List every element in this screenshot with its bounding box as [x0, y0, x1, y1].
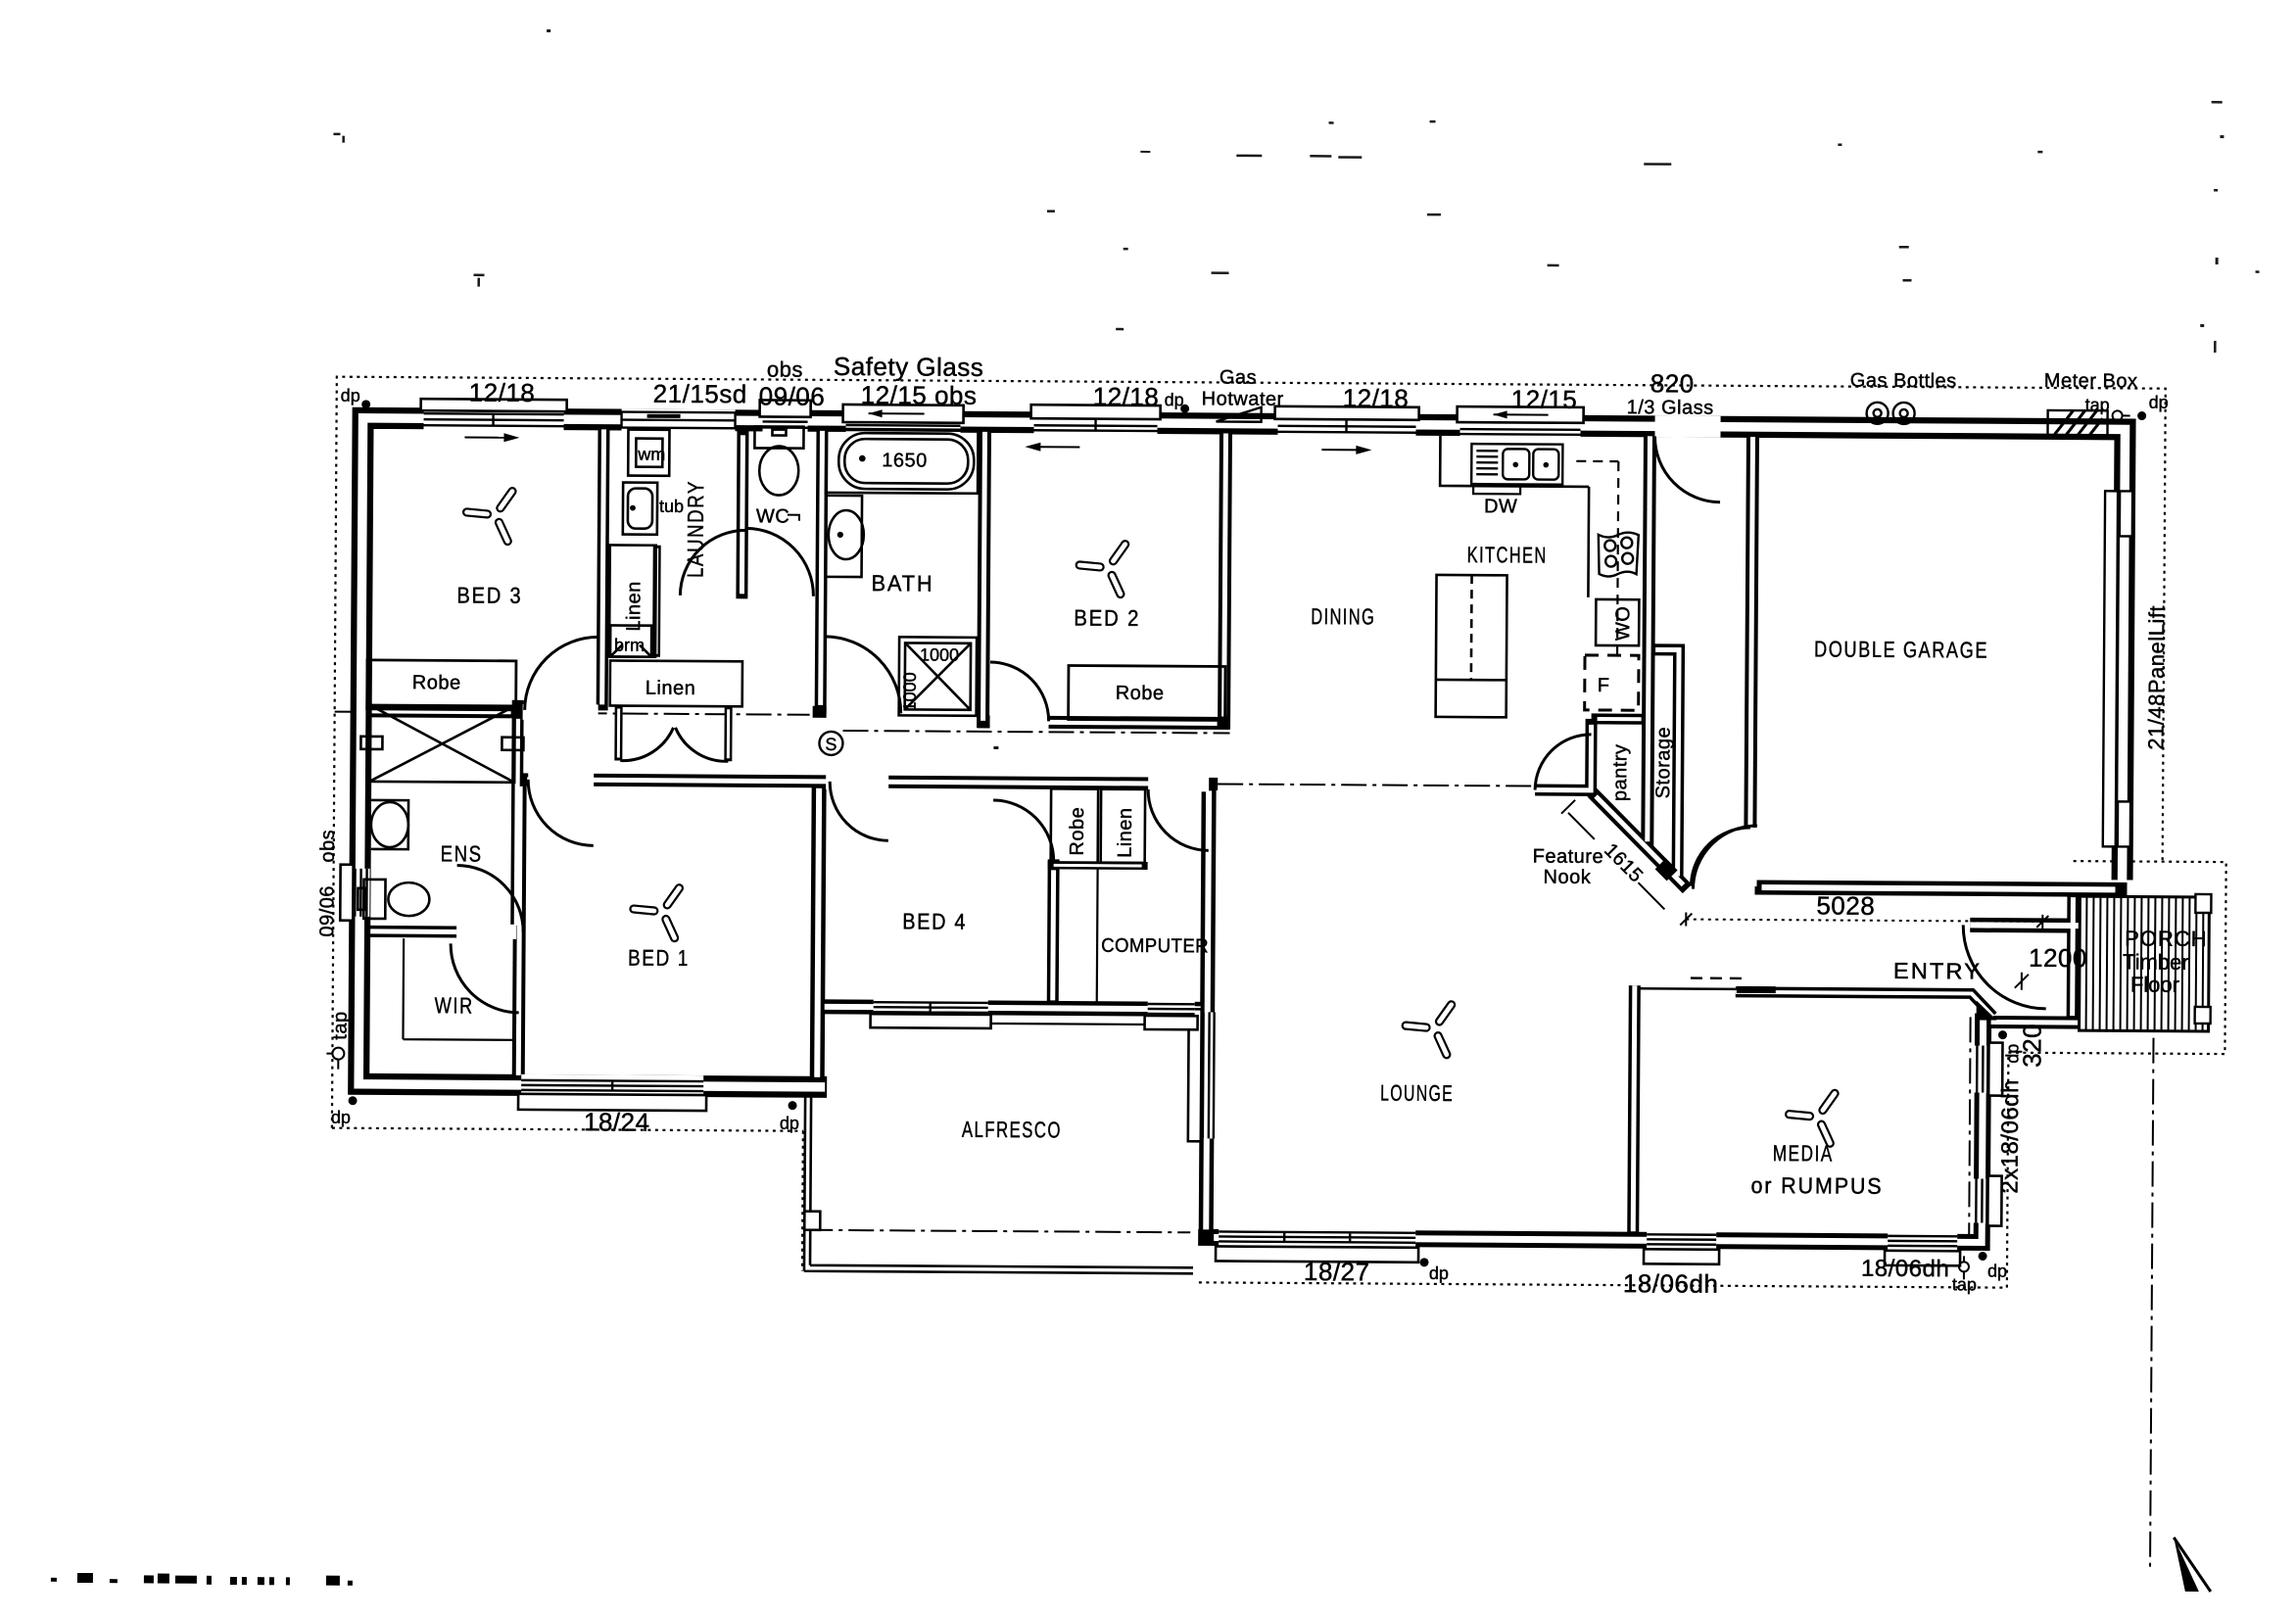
svg-text:12/15 obs: 12/15 obs [861, 380, 978, 410]
svg-text:12/18: 12/18 [469, 378, 536, 407]
svg-text:obs: obs [767, 357, 803, 381]
svg-text:DOUBLE GARAGE: DOUBLE GARAGE [1814, 636, 1988, 662]
svg-text:S: S [825, 735, 837, 754]
svg-text:DW: DW [1484, 496, 1517, 517]
svg-text:pantry: pantry [1609, 743, 1631, 801]
svg-text:5028: 5028 [1816, 890, 1875, 920]
svg-text:Floor: Floor [2130, 972, 2179, 996]
svg-text:KITCHEN: KITCHEN [1467, 542, 1548, 568]
svg-text:12/15: 12/15 [1511, 384, 1578, 413]
svg-text:BED 1: BED 1 [628, 945, 690, 971]
svg-text:09/06: 09/06 [759, 381, 826, 410]
svg-text:ALFRESCO: ALFRESCO [962, 1117, 1062, 1143]
svg-text:1000: 1000 [920, 644, 959, 664]
svg-text:Nook: Nook [1543, 867, 1591, 888]
svg-text:COMPUTER: COMPUTER [1101, 935, 1209, 958]
svg-text:1200: 1200 [2029, 943, 2087, 973]
svg-text:Linen: Linen [623, 581, 645, 632]
svg-text:18/06dh: 18/06dh [1623, 1268, 1719, 1299]
svg-text:Robe: Robe [1067, 807, 1088, 856]
svg-text:dp: dp [2149, 393, 2169, 412]
svg-text:Hotwater: Hotwater [1202, 388, 1284, 410]
svg-text:21/15sd: 21/15sd [653, 379, 747, 409]
svg-text:ENS: ENS [441, 840, 483, 866]
svg-text:DINING: DINING [1311, 603, 1375, 629]
svg-text:2x18/06dh: 2x18/06dh [1996, 1079, 2024, 1194]
svg-text:dp: dp [331, 1108, 351, 1127]
svg-text:Gas Bottles: Gas Bottles [1850, 370, 1957, 393]
svg-text:18/27: 18/27 [1304, 1257, 1370, 1286]
svg-text:12/18: 12/18 [1093, 382, 1160, 411]
svg-text:tap: tap [2085, 395, 2110, 414]
svg-text:Robe: Robe [412, 672, 461, 693]
svg-text:LAUNDRY: LAUNDRY [683, 480, 709, 578]
svg-text:WO: WO [1612, 606, 1634, 642]
svg-text:tub: tub [659, 497, 684, 516]
svg-text:1/3 Glass: 1/3 Glass [1627, 397, 1714, 419]
svg-text:Linen: Linen [646, 678, 696, 699]
svg-text:Linen: Linen [1115, 807, 1136, 858]
svg-text:Safety Glass: Safety Glass [834, 352, 984, 382]
svg-text:Storage: Storage [1652, 727, 1674, 799]
svg-text:BED 4: BED 4 [902, 908, 967, 933]
svg-text:tap: tap [1952, 1274, 1977, 1294]
svg-text:WC: WC [756, 505, 789, 527]
svg-text:obs: obs [317, 830, 339, 863]
svg-text:ENTRY: ENTRY [1893, 958, 1982, 984]
svg-text:21/48PanelLift: 21/48PanelLift [2143, 605, 2169, 750]
svg-text:dp: dp [780, 1114, 799, 1133]
svg-text:dp: dp [2002, 1044, 2022, 1064]
svg-text:820: 820 [1650, 368, 1695, 398]
svg-text:brm: brm [614, 635, 645, 654]
svg-text:BATH: BATH [871, 570, 933, 596]
svg-text:18/24: 18/24 [584, 1107, 650, 1136]
svg-text:PORCH: PORCH [2125, 926, 2208, 951]
svg-text:dp: dp [1987, 1262, 2007, 1281]
svg-text:WIR: WIR [435, 992, 474, 1018]
svg-text:09/06: 09/06 [316, 885, 338, 937]
svg-text:Meter Box: Meter Box [2044, 370, 2138, 393]
svg-text:1000: 1000 [900, 672, 920, 711]
svg-text:F: F [1598, 675, 1610, 696]
svg-text:wm: wm [637, 445, 665, 464]
svg-text:LOUNGE: LOUNGE [1380, 1080, 1454, 1106]
svg-text:1650: 1650 [882, 450, 928, 471]
svg-text:Robe: Robe [1116, 683, 1165, 704]
svg-text:12/18: 12/18 [1343, 383, 1410, 412]
svg-text:Feature: Feature [1533, 846, 1604, 868]
svg-text:BED 3: BED 3 [456, 582, 522, 607]
svg-text:Timber: Timber [2123, 949, 2189, 974]
svg-text:dp: dp [1429, 1263, 1449, 1283]
svg-text:Gas: Gas [1220, 366, 1257, 388]
svg-text:MEDIA: MEDIA [1773, 1140, 1834, 1166]
svg-text:18/06dh: 18/06dh [1861, 1256, 1949, 1283]
svg-text:tap: tap [329, 1011, 351, 1039]
svg-text:or RUMPUS: or RUMPUS [1750, 1172, 1883, 1199]
svg-text:BED 2: BED 2 [1074, 605, 1140, 631]
svg-text:dp: dp [341, 386, 360, 405]
